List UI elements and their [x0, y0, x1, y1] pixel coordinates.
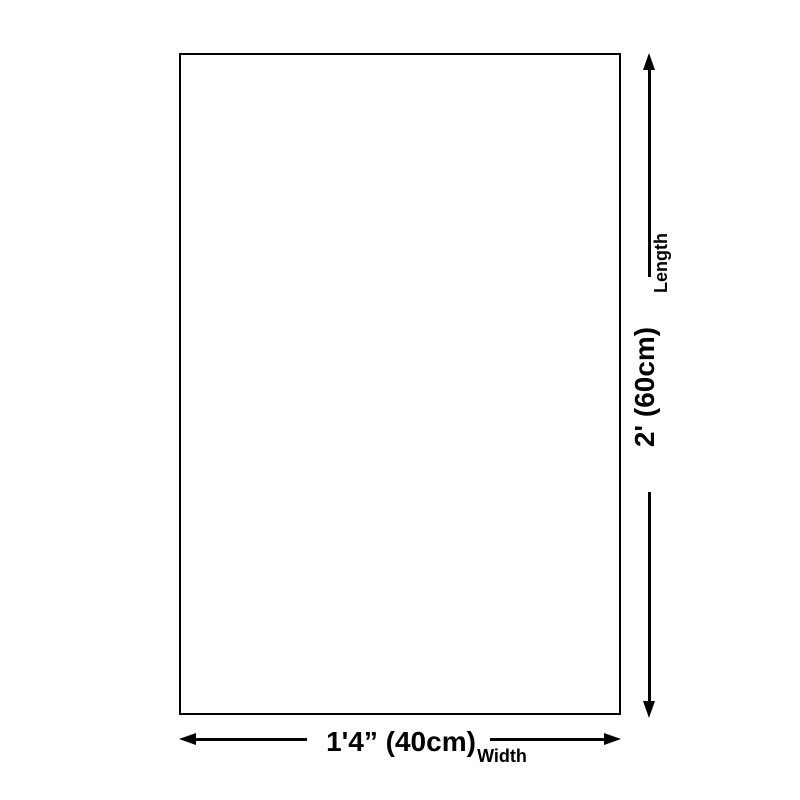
product-dimension-diagram: Length 2' (60cm) 1'4” (40cm) Width — [0, 0, 800, 800]
length-value: 2' (60cm) — [631, 327, 659, 447]
arrow-right-icon — [604, 733, 621, 745]
width-label: Width — [477, 747, 527, 765]
length-dimension-line-bottom — [648, 492, 651, 701]
arrow-left-icon — [179, 733, 196, 745]
width-value: 1'4” (40cm) — [326, 728, 476, 756]
arrow-down-icon — [643, 701, 655, 718]
width-dimension-line-left — [195, 738, 307, 741]
width-dimension-line-right — [490, 738, 604, 741]
length-label: Length — [652, 233, 670, 293]
product-rectangle — [179, 53, 621, 715]
